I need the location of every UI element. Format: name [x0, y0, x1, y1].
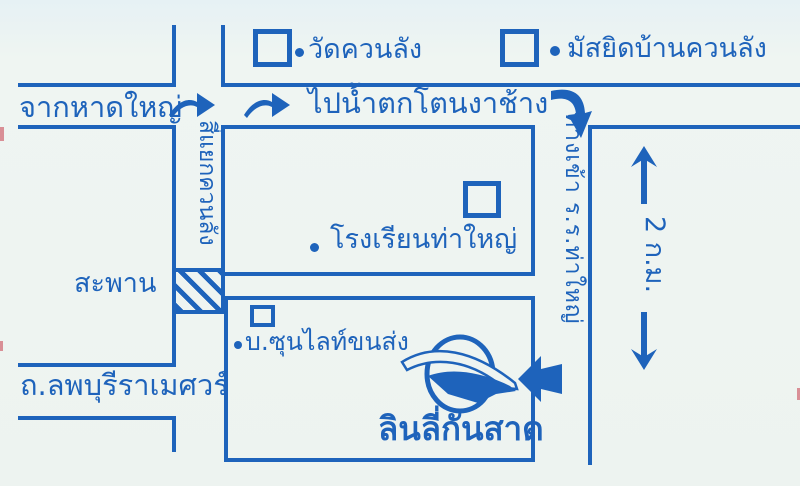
- temple-label: วัดควนลัง: [308, 34, 422, 66]
- road-edge: [18, 363, 176, 367]
- junction-label: สี่แยกควนลัง: [194, 120, 219, 246]
- scan-speck: [0, 341, 3, 351]
- road-edge: [221, 125, 535, 129]
- road-edge: [588, 125, 592, 465]
- school-entrance-label: ทางเข้า ร.ร.ท่าใหญ่: [560, 112, 585, 325]
- road-edge: [588, 125, 800, 129]
- landmark-square-school: [463, 181, 501, 218]
- road-edge: [172, 125, 176, 270]
- mosque-label: มัสยิดบ้านควนลัง: [567, 33, 767, 65]
- bridge-hatch-icon: [172, 268, 225, 314]
- road-edge: [531, 125, 535, 276]
- lopburi-road-label: ถ.ลพบุรีราเมศวร์: [20, 368, 229, 403]
- landmark-square-mosque: [500, 29, 539, 67]
- road-edge: [172, 25, 176, 87]
- landmark-square-transport: [250, 305, 275, 327]
- down-arrow-icon: [630, 312, 658, 370]
- distance-label: 2 ก.ม.: [639, 216, 669, 293]
- landmark-square-temple: [253, 29, 292, 67]
- bullet-dot: [550, 46, 560, 56]
- road-edge: [221, 125, 225, 276]
- road-edge: [172, 416, 176, 452]
- road-edge: [18, 83, 172, 87]
- transport-label: บ.ซุนไลท์ขนส่ง: [245, 327, 409, 357]
- bullet-dot: [234, 341, 242, 349]
- road-edge: [18, 416, 176, 420]
- road-edge: [221, 272, 535, 276]
- scan-speck: [0, 127, 4, 141]
- bullet-dot: [295, 48, 304, 57]
- road-edge: [18, 125, 172, 129]
- hand-drawn-map: วัดควนลัง มัสยิดบ้านควนลัง จากหาดใหญ่ ไป…: [0, 0, 800, 486]
- road-edge: [172, 310, 176, 367]
- company-label: ลินลี่กันสาด: [378, 409, 544, 449]
- school-label: โรงเรียนท่าใหญ่: [330, 224, 517, 256]
- to-waterfall-label: ไปน้ำตกโตนงาช้าง: [308, 86, 548, 121]
- road-edge: [221, 25, 225, 87]
- bridge-label: สะพาน: [74, 268, 156, 300]
- bullet-dot: [310, 243, 319, 252]
- from-hatyai-label: จากหาดใหญ่: [19, 90, 182, 125]
- up-arrow-icon: [630, 146, 658, 204]
- curved-right-arrow-icon: [242, 91, 292, 121]
